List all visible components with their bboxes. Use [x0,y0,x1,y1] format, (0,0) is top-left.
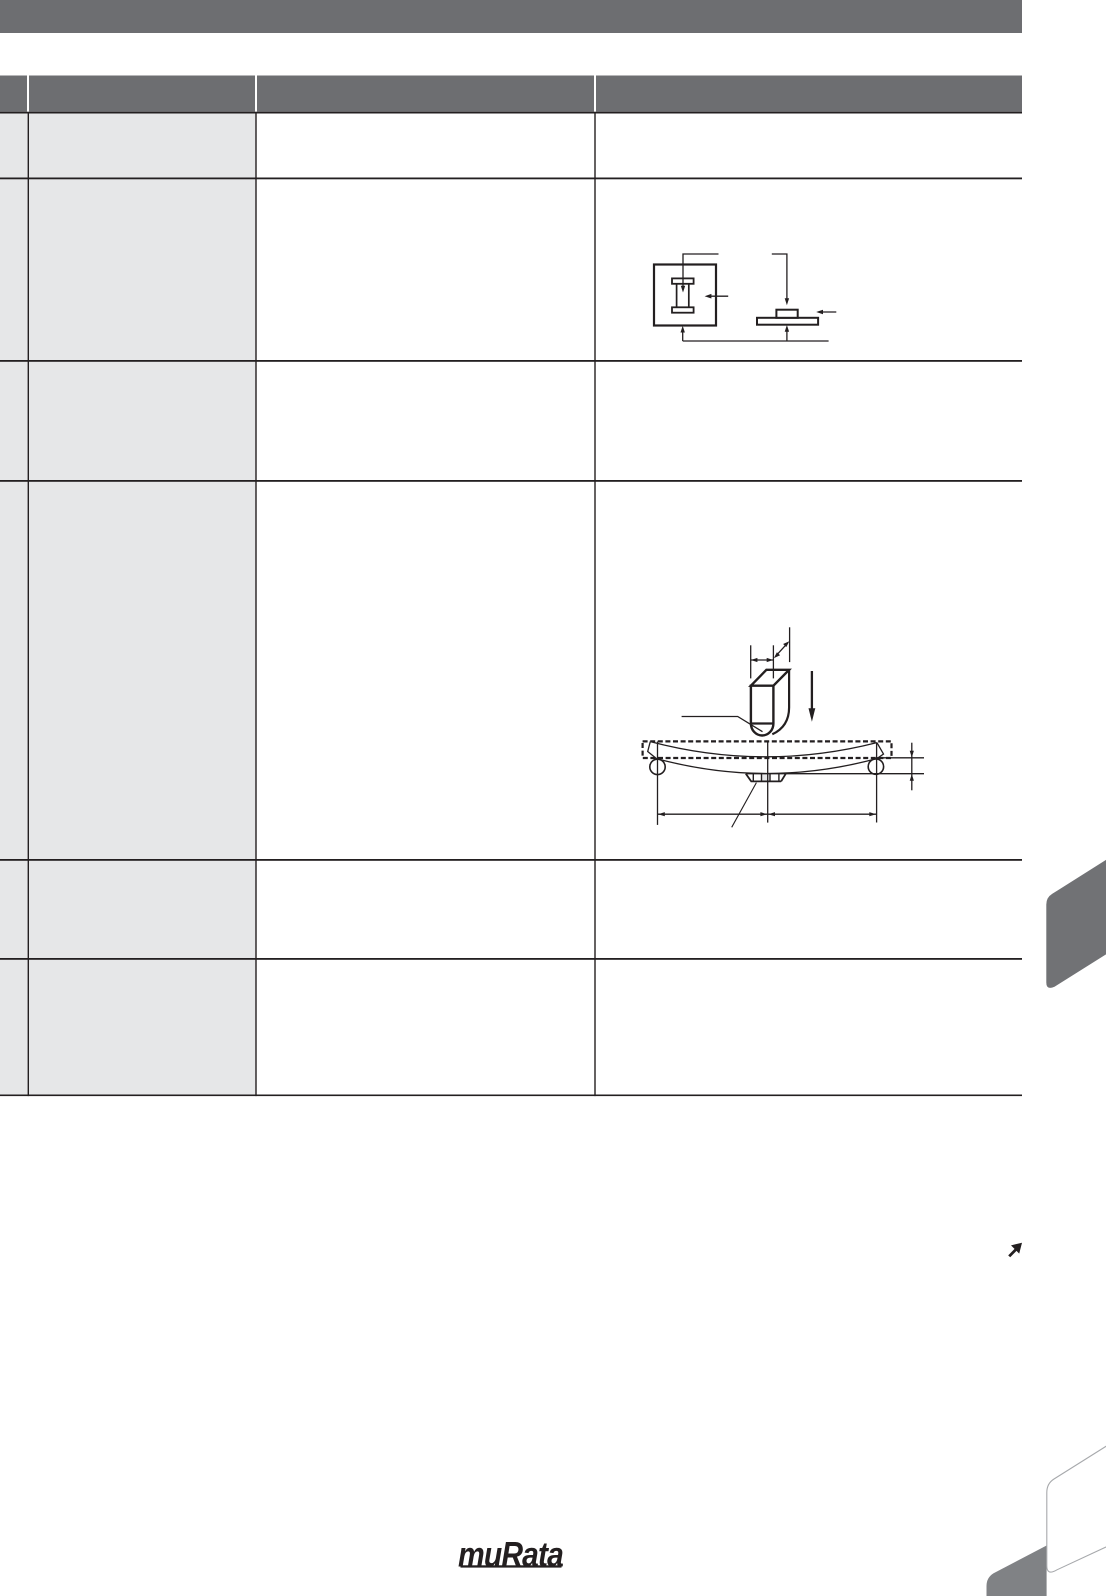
svg-text:muRata: muRata [458,1536,563,1575]
